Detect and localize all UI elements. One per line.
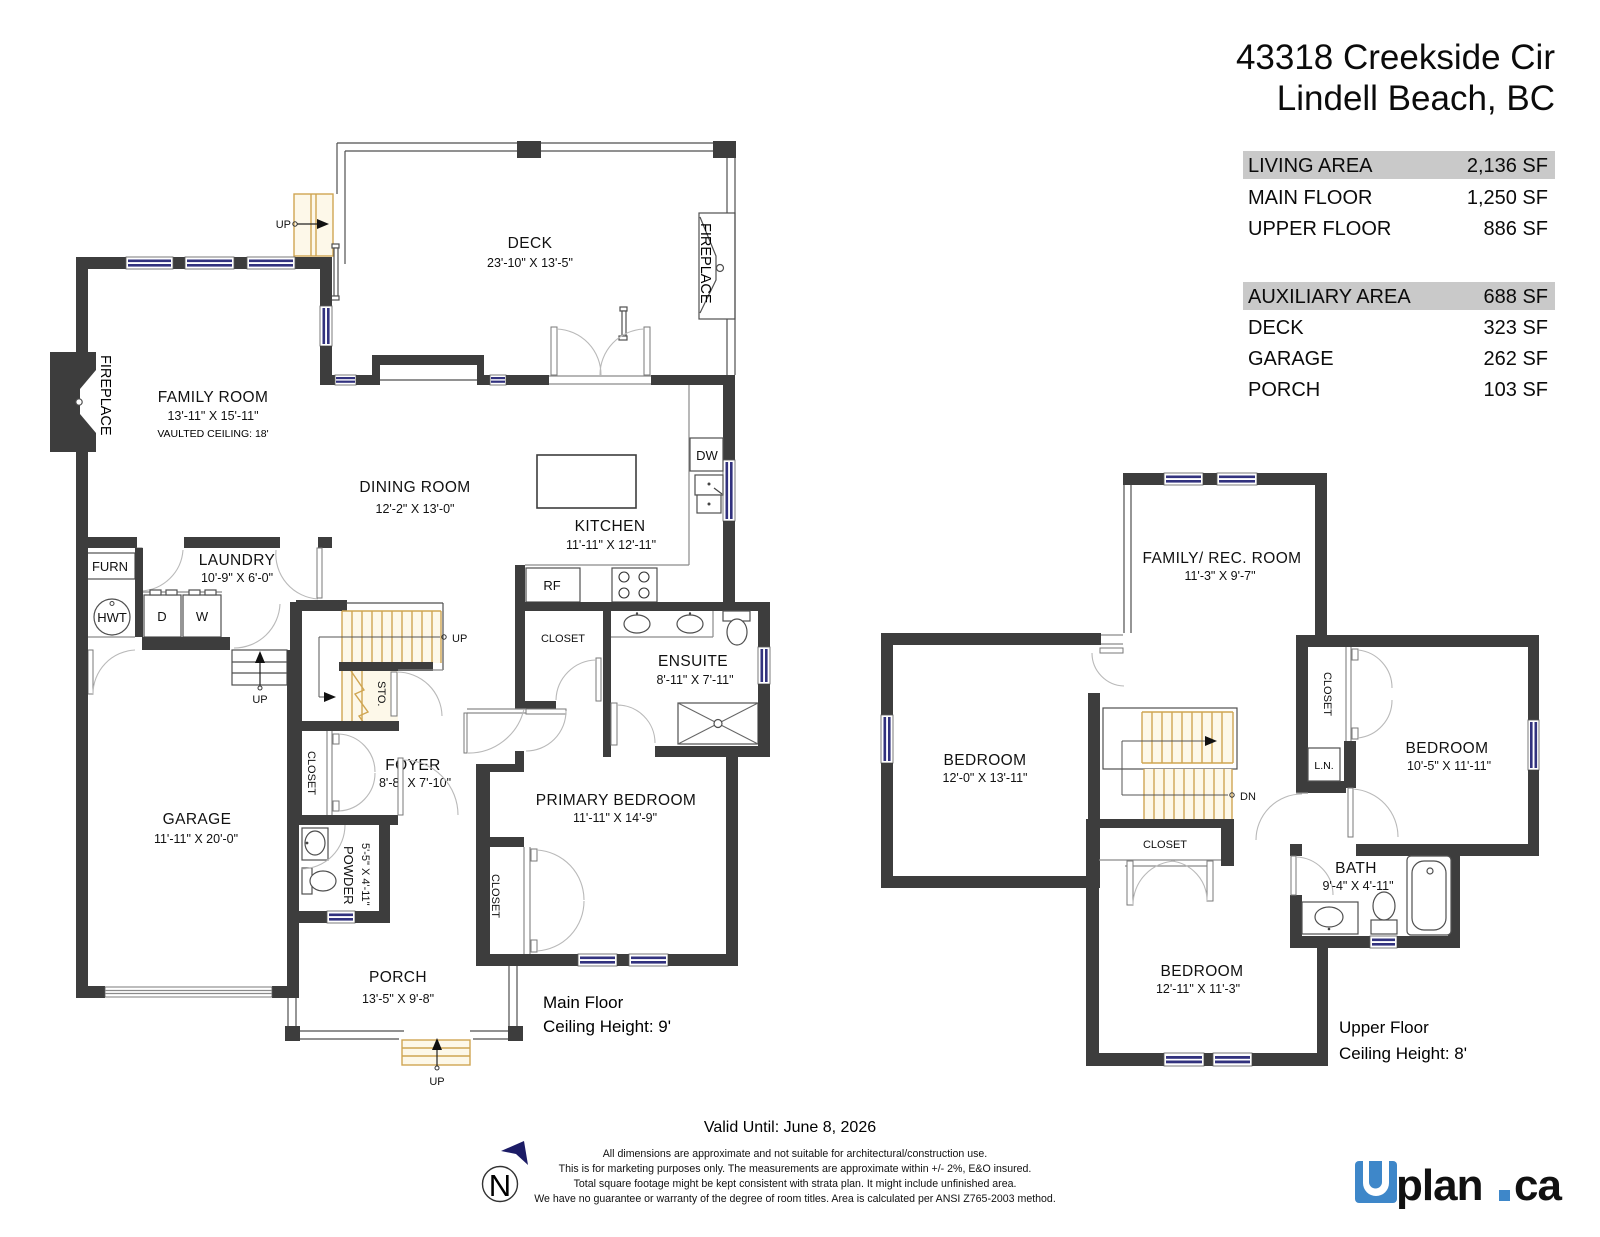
svg-text:CLOSET: CLOSET [489,874,501,918]
svg-text:12'-11" X 11'-3": 12'-11" X 11'-3" [1156,982,1240,996]
svg-text:Valid Until: June 8, 2026: Valid Until: June 8, 2026 [704,1119,876,1136]
svg-text:All dimensions are approximate: All dimensions are approximate and not s… [603,1148,988,1160]
svg-text:UPPER FLOOR: UPPER FLOOR [1248,218,1391,240]
svg-text:8'-11" X 7'-11": 8'-11" X 7'-11" [656,673,733,687]
svg-text:ca: ca [1514,1161,1562,1210]
svg-text:FAMILY ROOM: FAMILY ROOM [158,389,269,406]
svg-text:VAULTED CEILING: 18': VAULTED CEILING: 18' [157,428,268,440]
svg-text:8'-8" X 7'-10": 8'-8" X 7'-10" [379,776,451,790]
svg-text:BEDROOM: BEDROOM [944,752,1027,769]
svg-text:LAUNDRY: LAUNDRY [199,552,276,569]
svg-text:688 SF: 688 SF [1484,286,1548,308]
svg-text:11'-3" X 9'-7": 11'-3" X 9'-7" [1184,569,1255,583]
svg-text:12'-2" X 13'-0": 12'-2" X 13'-0" [376,502,455,516]
svg-text:323 SF: 323 SF [1484,317,1548,339]
svg-text:AUXILIARY AREA: AUXILIARY AREA [1248,286,1411,308]
svg-text:DINING ROOM: DINING ROOM [359,479,470,496]
svg-text:Main Floor: Main Floor [543,993,624,1012]
svg-text:23'-10" X 13'-5": 23'-10" X 13'-5" [487,256,573,270]
svg-text:1,250 SF: 1,250 SF [1467,187,1548,209]
svg-text:2,136 SF: 2,136 SF [1467,155,1548,177]
svg-text:GARAGE: GARAGE [163,811,232,828]
svg-text:STO.: STO. [375,681,387,706]
svg-text:FIREPLACE: FIREPLACE [97,355,113,436]
svg-text:PRIMARY BEDROOM: PRIMARY BEDROOM [536,792,696,809]
svg-text:We have no guarantee or warran: We have no guarantee or warranty of the … [534,1193,1056,1205]
svg-text:CLOSET: CLOSET [1321,672,1333,716]
svg-text:PORCH: PORCH [369,969,427,986]
svg-text:Total square footage might be: Total square footage might be kept consi… [574,1178,1017,1190]
svg-text:This is for marketing purposes: This is for marketing purposes only. The… [559,1163,1032,1175]
svg-text:FURN: FURN [92,559,128,574]
svg-text:PORCH: PORCH [1248,379,1320,401]
svg-text:GARAGE: GARAGE [1248,348,1334,370]
svg-text:POWDER: POWDER [341,846,356,905]
svg-text:DECK: DECK [508,235,553,252]
svg-text:103 SF: 103 SF [1484,379,1548,401]
svg-text:5'-5" X 4'-11": 5'-5" X 4'-11" [359,843,371,906]
svg-text:KITCHEN: KITCHEN [575,518,646,535]
svg-text:Upper Floor: Upper Floor [1339,1018,1429,1037]
svg-text:ENSUITE: ENSUITE [658,653,728,670]
svg-text:13'-11" X 15'-11": 13'-11" X 15'-11" [167,409,258,423]
svg-text:DW: DW [696,448,718,463]
svg-text:W: W [196,609,209,624]
svg-text:10'-9" X 6'-0": 10'-9" X 6'-0" [201,571,273,585]
svg-text:12'-0" X 13'-11": 12'-0" X 13'-11" [943,771,1028,785]
svg-text:UP: UP [252,694,267,706]
svg-text:FIREPLACE: FIREPLACE [697,223,713,304]
svg-text:11'-11" X 12'-11": 11'-11" X 12'-11" [566,538,656,552]
svg-text:Ceiling Height: 9': Ceiling Height: 9' [543,1017,671,1036]
svg-text:43318 Creekside Cir: 43318 Creekside Cir [1236,38,1555,77]
svg-text:Lindell Beach, BC: Lindell Beach, BC [1277,79,1555,118]
svg-text:CLOSET: CLOSET [541,633,585,645]
svg-text:10'-5" X 11'-11": 10'-5" X 11'-11" [1407,759,1491,773]
svg-text:886 SF: 886 SF [1484,218,1548,240]
svg-text:DN: DN [1240,791,1256,803]
svg-text:CLOSET: CLOSET [1143,839,1187,851]
svg-text:UP: UP [429,1076,444,1088]
svg-text:11'-11" X 20'-0": 11'-11" X 20'-0" [154,832,238,846]
svg-text:plan: plan [1396,1161,1482,1210]
svg-text:UP: UP [276,219,291,231]
svg-text:N: N [489,1168,511,1203]
svg-text:9'-4" X 4'-11": 9'-4" X 4'-11" [1322,879,1393,893]
svg-text:D: D [157,609,166,624]
svg-text:11'-11" X 14'-9": 11'-11" X 14'-9" [573,811,657,825]
svg-text:CLOSET: CLOSET [305,751,317,795]
svg-text:BEDROOM: BEDROOM [1406,740,1489,757]
svg-text:MAIN FLOOR: MAIN FLOOR [1248,187,1372,209]
svg-text:FOYER: FOYER [385,757,440,774]
svg-text:Ceiling Height: 8': Ceiling Height: 8' [1339,1044,1467,1063]
svg-text:UP: UP [452,633,467,645]
svg-text:13'-5" X 9'-8": 13'-5" X 9'-8" [362,992,434,1006]
svg-text:DECK: DECK [1248,317,1304,339]
svg-text:LIVING AREA: LIVING AREA [1248,155,1373,177]
svg-text:L.N.: L.N. [1314,760,1333,772]
svg-text:BEDROOM: BEDROOM [1161,963,1244,980]
svg-text:BATH: BATH [1335,860,1377,877]
svg-text:RF: RF [543,578,560,593]
svg-text:HWT: HWT [97,610,127,625]
svg-text:FAMILY/ REC. ROOM: FAMILY/ REC. ROOM [1143,550,1302,567]
svg-text:262 SF: 262 SF [1484,348,1548,370]
